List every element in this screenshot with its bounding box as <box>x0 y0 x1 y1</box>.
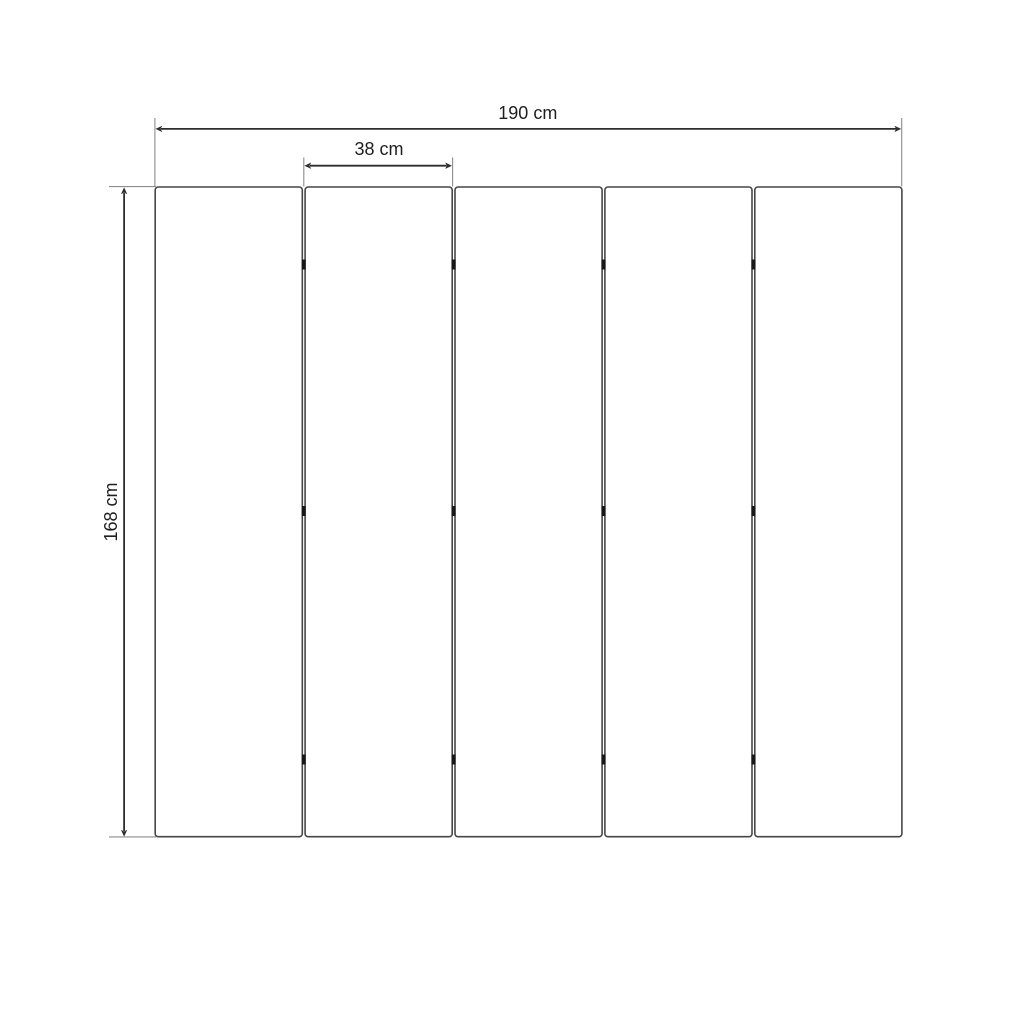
svg-text:190 cm: 190 cm <box>498 103 557 123</box>
svg-text:38 cm: 38 cm <box>354 139 403 159</box>
svg-text:168 cm: 168 cm <box>101 482 121 541</box>
